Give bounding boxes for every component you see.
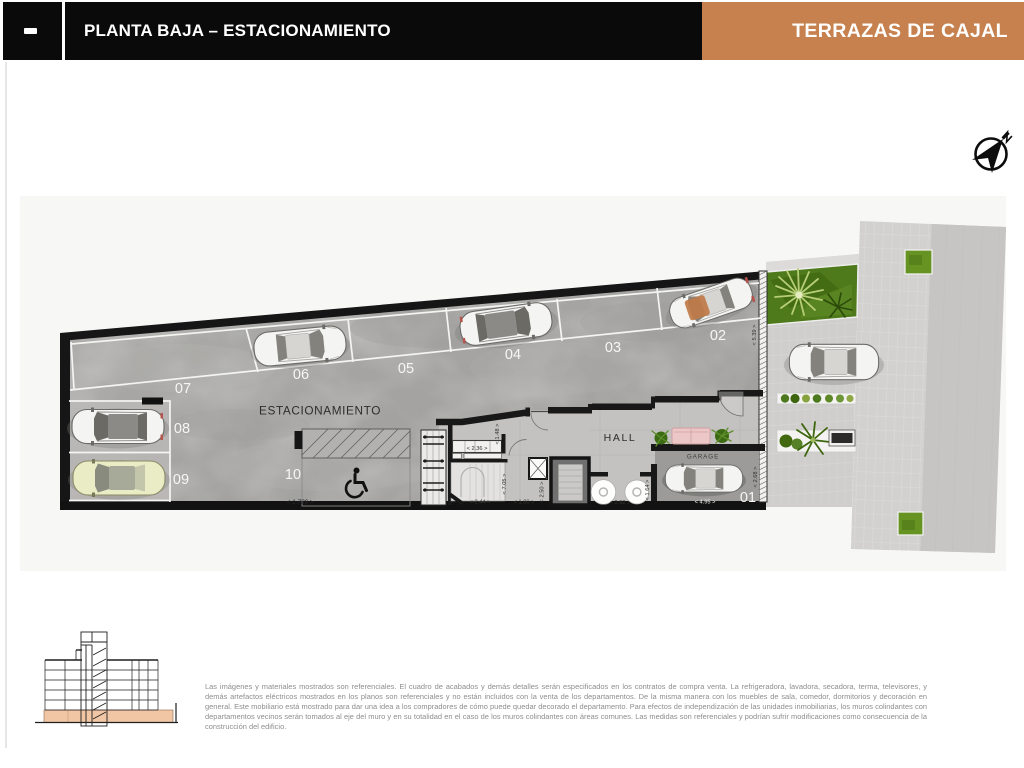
svg-text:09: 09 xyxy=(173,472,189,488)
svg-text:06: 06 xyxy=(293,367,309,383)
svg-text:< 1.64 >: < 1.64 > xyxy=(645,479,651,501)
svg-text:< 5.39 >: < 5.39 > xyxy=(752,324,758,346)
svg-text:ESTACIONAMIENTO: ESTACIONAMIENTO xyxy=(259,404,381,418)
svg-text:10: 10 xyxy=(285,467,301,483)
svg-text:< 2.44 >: < 2.44 > xyxy=(470,500,492,506)
svg-text:< 2.92 >: < 2.92 > xyxy=(610,500,632,506)
svg-text:05: 05 xyxy=(398,361,414,377)
svg-text:< 2.68 >: < 2.68 > xyxy=(753,466,759,488)
svg-text:< 2.36 >: < 2.36 > xyxy=(467,446,489,452)
svg-text:< 1.80 >: < 1.80 > xyxy=(514,500,536,506)
svg-text:07: 07 xyxy=(175,381,191,397)
svg-text:04: 04 xyxy=(505,347,521,363)
svg-text:GARAGE: GARAGE xyxy=(687,454,719,461)
svg-text:< 1.48 >: < 1.48 > xyxy=(495,423,501,445)
svg-text:< 4.95 >: < 4.95 > xyxy=(695,500,717,506)
svg-text:< 1.789 >: < 1.789 > xyxy=(286,499,313,506)
svg-text:< 2.50 >: < 2.50 > xyxy=(540,481,546,503)
svg-text:01: 01 xyxy=(740,490,756,506)
svg-text:03: 03 xyxy=(605,340,621,356)
svg-text:< 7.05 >: < 7.05 > xyxy=(502,473,508,495)
svg-text:HALL: HALL xyxy=(604,432,637,444)
svg-text:08: 08 xyxy=(174,421,190,437)
svg-text:02: 02 xyxy=(710,328,726,344)
